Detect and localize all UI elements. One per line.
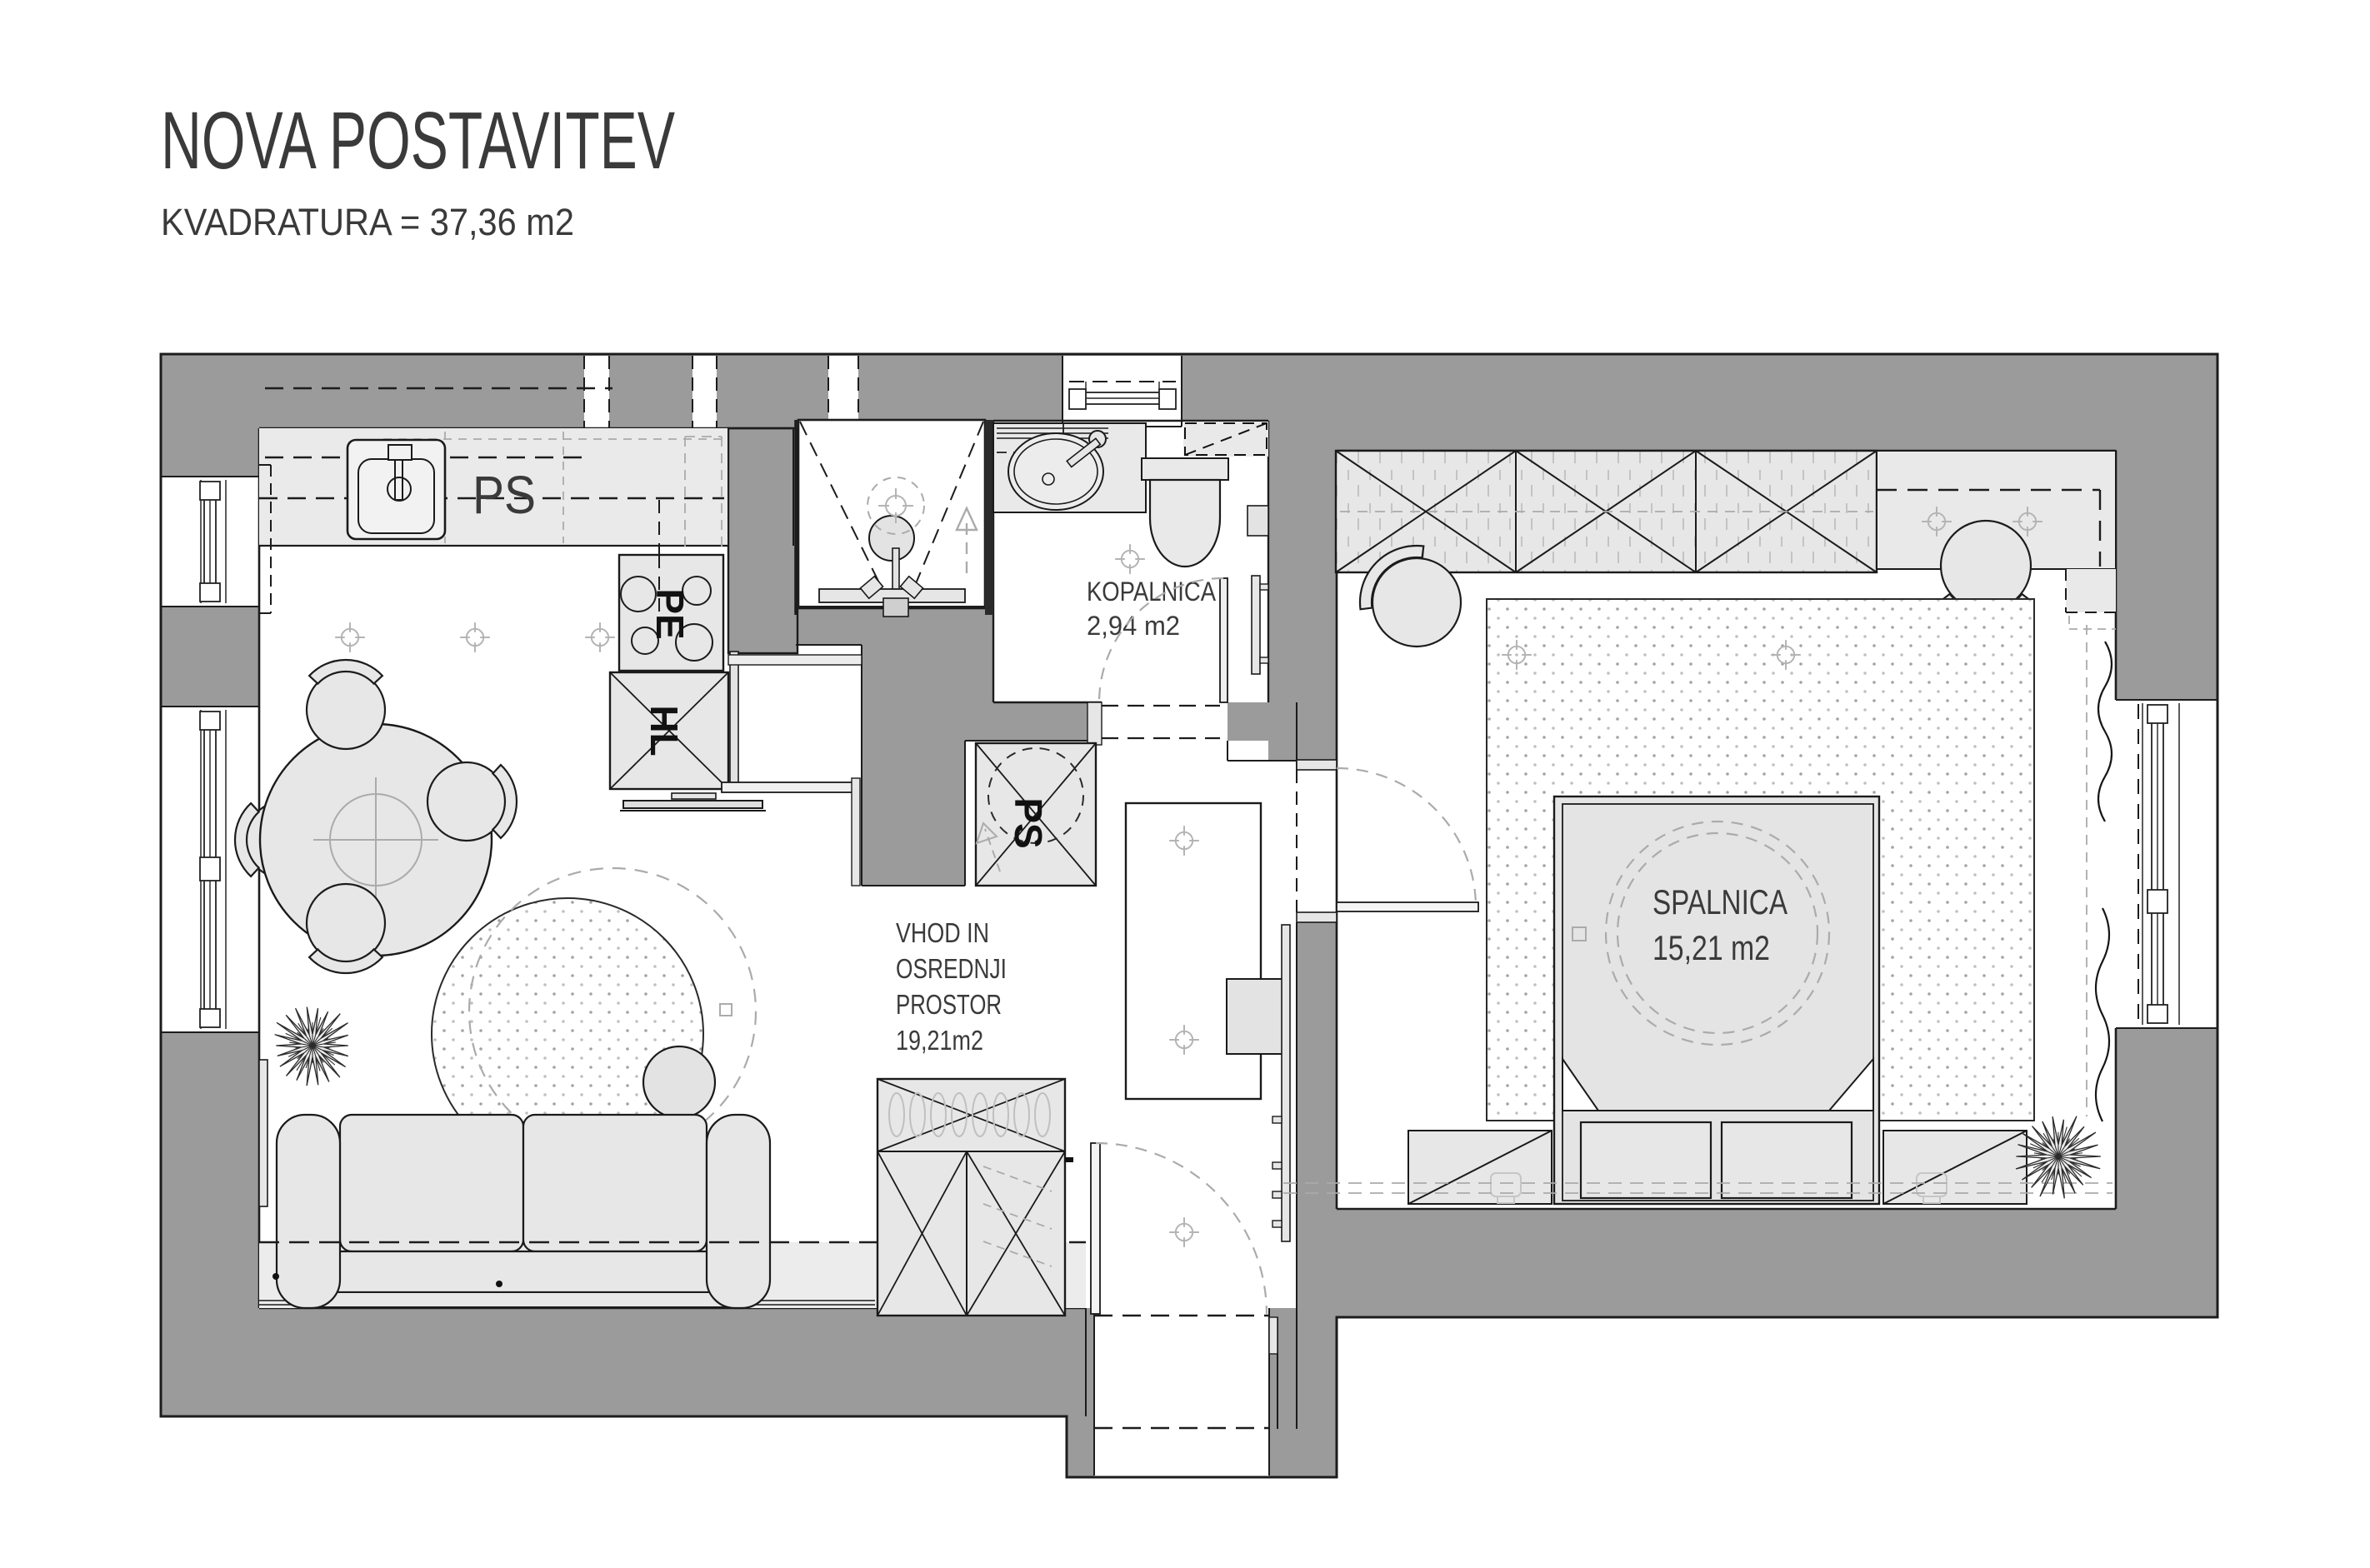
svg-text:VHOD IN: VHOD IN	[896, 917, 989, 948]
svg-text:PE: PE	[648, 588, 692, 639]
svg-text:PROSTOR: PROSTOR	[896, 989, 1002, 1020]
svg-text:PS: PS	[1007, 797, 1050, 848]
svg-text:15,21 m2: 15,21 m2	[1652, 928, 1770, 967]
svg-text:HL: HL	[642, 705, 686, 756]
svg-text:NOVA POSTAVITEV: NOVA POSTAVITEV	[161, 95, 675, 186]
svg-text:SPALNICA: SPALNICA	[1652, 882, 1787, 921]
svg-text:PS: PS	[472, 465, 536, 525]
svg-text:OSREDNJI: OSREDNJI	[896, 953, 1007, 984]
svg-text:19,21m2: 19,21m2	[896, 1025, 983, 1056]
svg-text:2,94 m2: 2,94 m2	[1087, 611, 1180, 641]
svg-text:KVADRATURA = 37,36 m2: KVADRATURA = 37,36 m2	[161, 201, 574, 243]
